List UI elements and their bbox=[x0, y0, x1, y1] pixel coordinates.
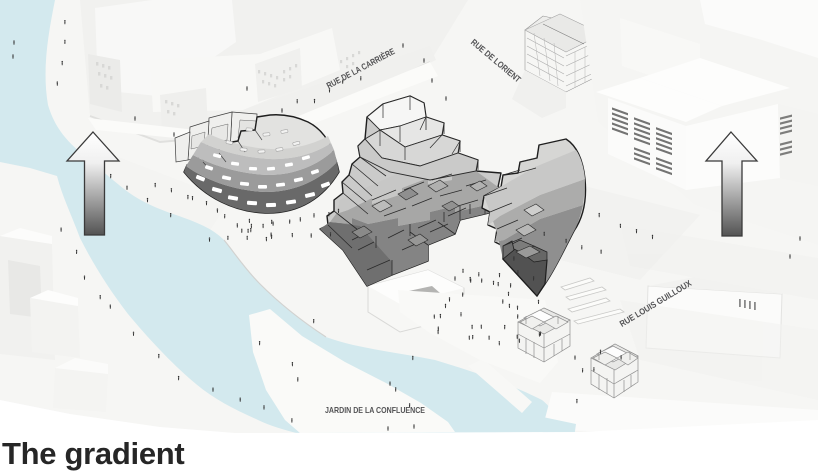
svg-text:JARDIN DE LA CONFLUENCE: JARDIN DE LA CONFLUENCE bbox=[325, 406, 425, 415]
svg-text:The gradient: The gradient bbox=[2, 436, 184, 471]
